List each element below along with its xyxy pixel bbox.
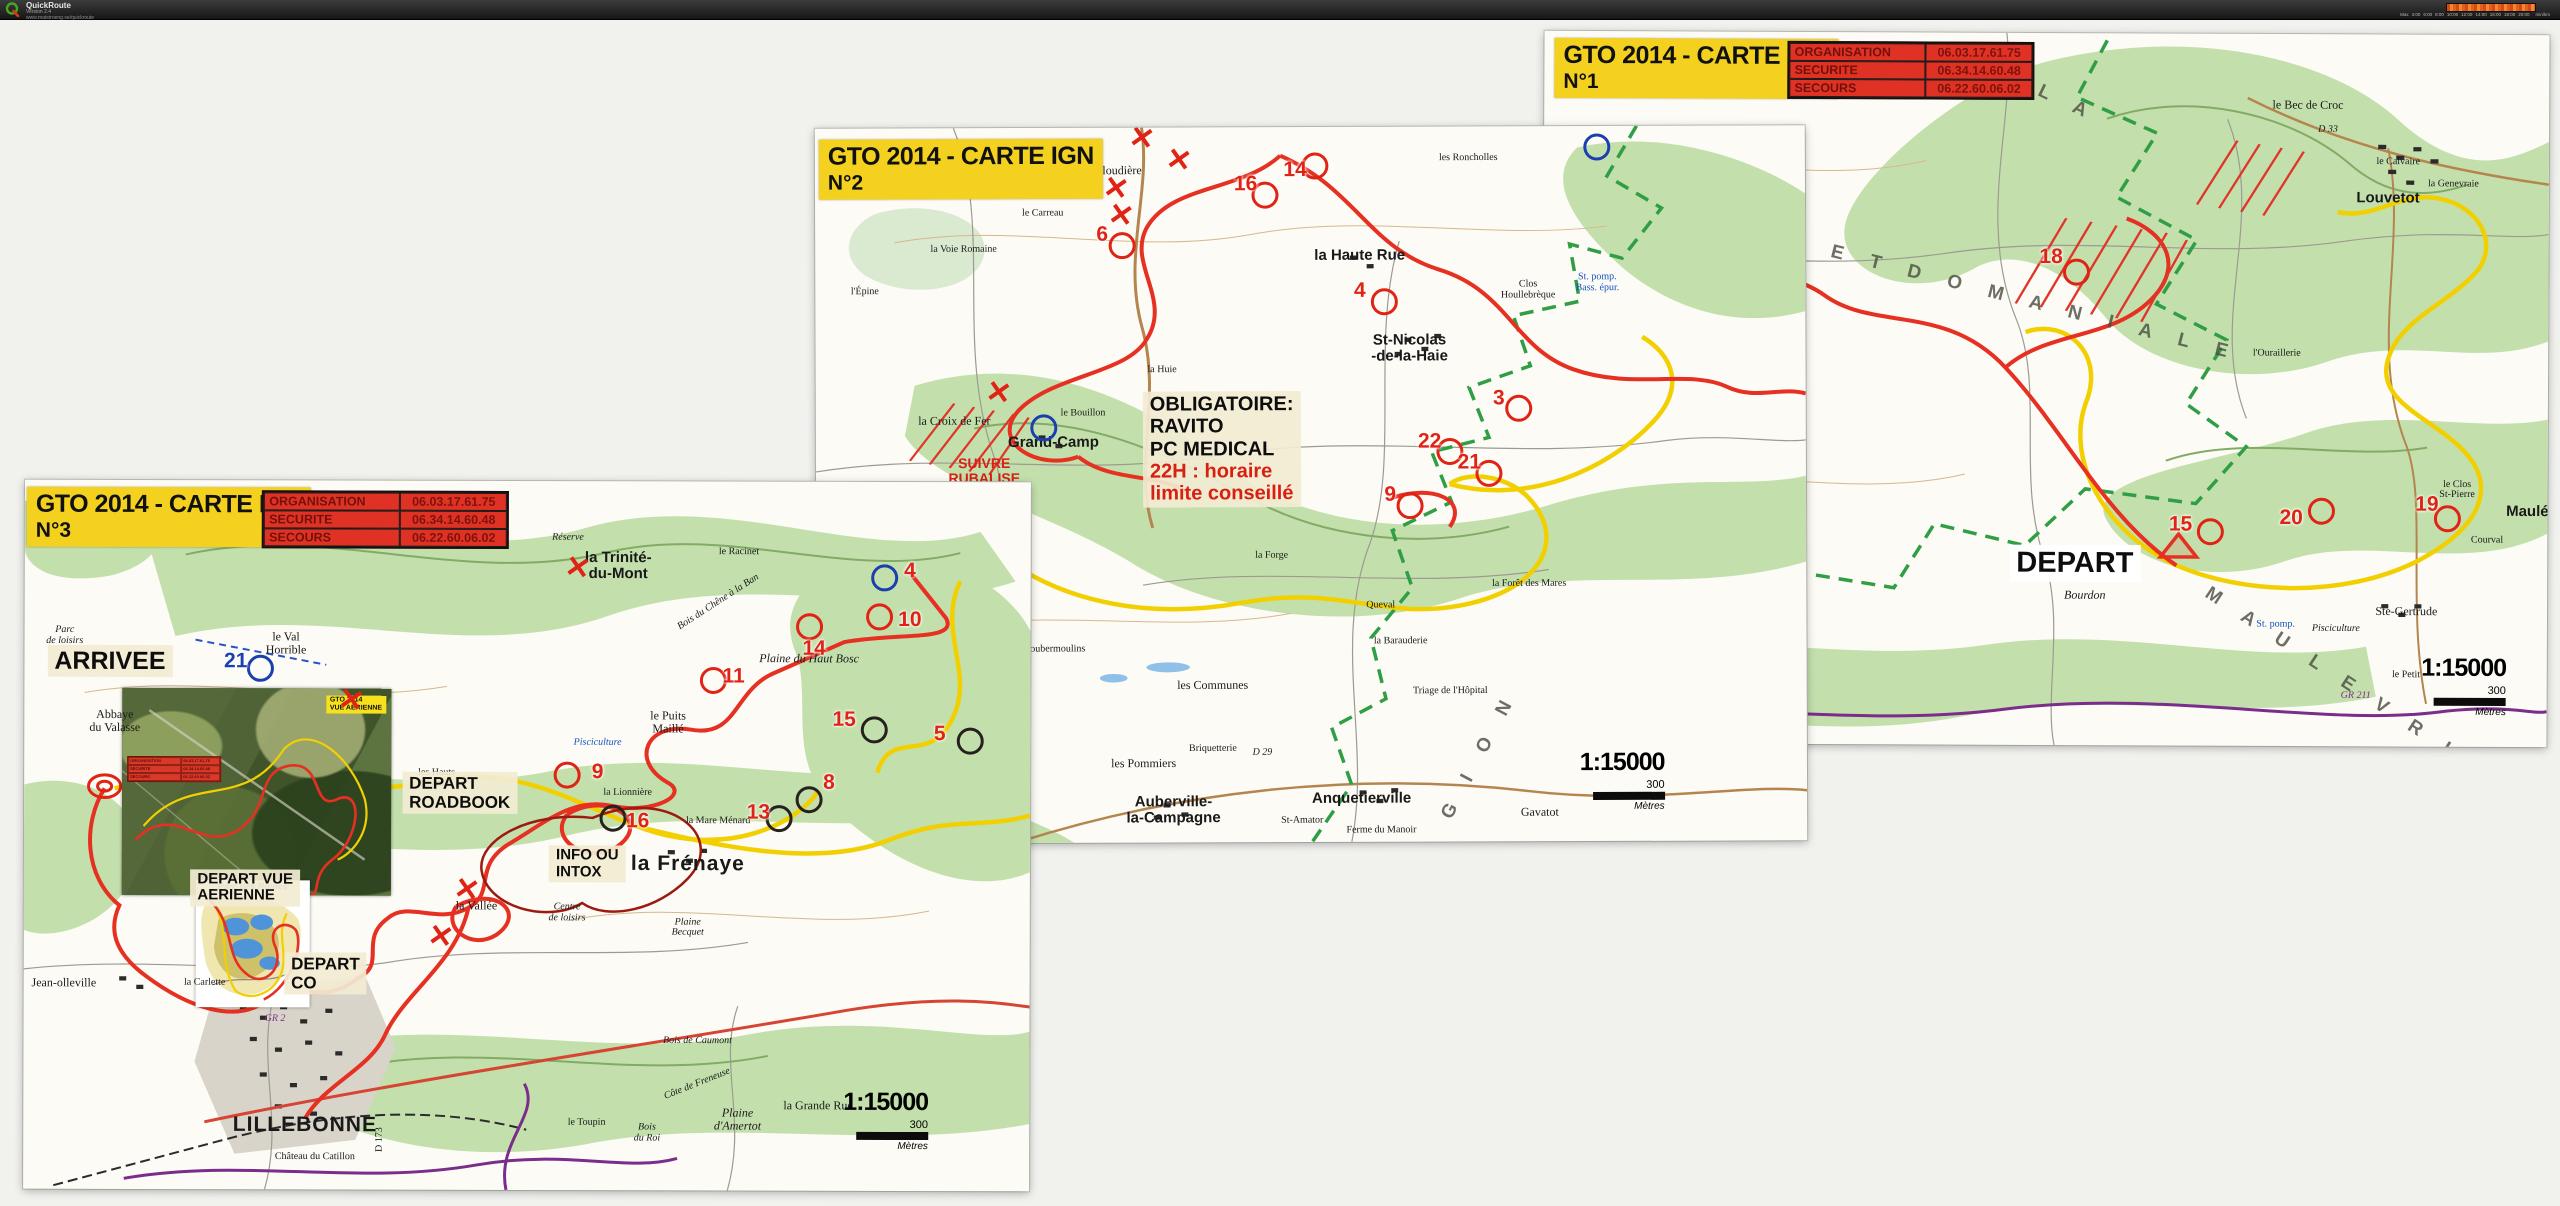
place-label: D 173 (375, 1128, 386, 1153)
contact-label: SECOURS (264, 528, 400, 546)
scale-ratio: 1:15000 (2396, 654, 2506, 683)
map-sheet-carte-n3[interactable]: GTO 2014 VUE AERIENNE ORGANISATION 06.03… (23, 480, 1031, 1192)
control-ring (2063, 258, 2090, 285)
annotation-line: ROADBOOK (409, 793, 510, 812)
place-label: D 29 (1253, 747, 1273, 758)
place-label: St. pomp. Bass. épur. (1576, 272, 1620, 294)
place-label: Ferme du Manoir (1346, 826, 1416, 837)
map-title-line1: GTO 2014 - CARTE IGN (828, 142, 1094, 172)
annotation-line: 22H : horaire (1150, 460, 1294, 483)
map-title-n2: GTO 2014 - CARTE IGN N°2 (819, 139, 1103, 200)
scale-indicator-n1: 1:15000 300 Mètres (2396, 654, 2506, 718)
place-label: Plaine Becquet (672, 917, 704, 939)
control-ring (866, 603, 893, 630)
control-ring (554, 762, 581, 789)
annotation-line: AERIENNE (197, 888, 293, 905)
place-label: la Croix de Fer (918, 415, 990, 428)
contact-label: SECURITE (1790, 60, 1926, 79)
place-label: Goubermoulins (1023, 644, 1085, 655)
control-number: 14 (1283, 158, 1306, 182)
control-ring (1505, 395, 1532, 422)
control-number: 11 (723, 664, 745, 688)
toolbar: QuickRoute Version 2.4 www.matstroeng.se… (0, 0, 2560, 20)
pace-gradient-bar[interactable] (2446, 3, 2536, 12)
place-label: St-Nicolas -de-la-Haie (1371, 332, 1448, 365)
place-label: le Racinet (719, 547, 759, 558)
legend-tick-label: 6:00 (2423, 12, 2432, 17)
contact-table-n1: ORGANISATION 06.03.17.61.75 SECURITE 06.… (1787, 40, 2034, 99)
control-number: 5 (934, 722, 946, 746)
place-label: le Toupin (568, 1117, 606, 1128)
place-label: les Pommiers (1111, 757, 1176, 770)
control-ring (1109, 232, 1136, 259)
place-label: Bourdon (2064, 589, 2106, 602)
place-label: le Bec de Croc (2273, 99, 2344, 112)
place-label: Anquetierville (1312, 791, 1411, 808)
place-label: la Haute Rue (1314, 247, 1405, 264)
control-number: 4 (904, 559, 916, 583)
place-label: L A (2034, 82, 2099, 127)
place-label: le Calvaire (2376, 157, 2420, 168)
contact-phone: 06.34.14.60.48 (400, 511, 507, 529)
place-label: l'Épine (851, 288, 879, 299)
place-label: la Huie (1148, 365, 1177, 376)
route-x-mark: ✕ (983, 373, 1014, 412)
annotation-line: DEPART VUE (197, 871, 293, 888)
place-label: la Forge (1255, 551, 1288, 562)
scale-bar (2434, 698, 2506, 706)
control-number: 20 (2279, 506, 2302, 530)
annotation-line: DEPART (2016, 547, 2133, 580)
contact-table-n3: ORGANISATION 06.03.17.61.75 SECURITE 06.… (262, 490, 509, 549)
pace-legend[interactable]: Max4:006:008:0010:0012:0014:0016:0018:00… (2400, 1, 2550, 18)
control-number: 18 (2039, 245, 2062, 269)
control-number: 16 (626, 810, 649, 834)
scale-indicator-n3: 1:15000 300 Mètres (818, 1088, 928, 1152)
legend-tick-label: 16:00 (2490, 12, 2501, 17)
control-ring (795, 786, 822, 813)
place-label: GR 2 (265, 1014, 286, 1025)
scale-ratio: 1:15000 (818, 1088, 928, 1117)
place-label: les Communes (1177, 678, 1248, 691)
map-title-line2: N°2 (828, 171, 1094, 196)
place-label: le Carreau (1022, 208, 1063, 219)
place-label: LILLEBONNE (233, 1114, 377, 1137)
contact-label: ORGANISATION (1790, 42, 1926, 61)
place-label: la Trinité- du-Mont (585, 550, 652, 583)
annotation-line: INTOX (556, 864, 619, 881)
annotation-line: PC MEDICAL (1150, 438, 1294, 461)
annotation-box: DEPARTCO (284, 952, 367, 994)
annotation-line: ARRIVEE (54, 647, 165, 675)
annotation-box: INFO OUINTOX (549, 845, 626, 883)
place-label: Clos Houllebrèque (1501, 280, 1556, 302)
control-number: 15 (832, 707, 855, 731)
legend-unit-label: min/km (2536, 12, 2551, 17)
place-label: Queval (1366, 600, 1395, 611)
place-label: Bois du Roi (634, 1123, 660, 1145)
place-label: Pisciculture (574, 738, 622, 749)
place-label: Château du Catillon (275, 1152, 355, 1163)
control-number: 9 (1384, 483, 1396, 507)
place-label: le Clos St-Pierre (2439, 480, 2475, 502)
place-label: Maulé (2506, 504, 2549, 520)
control-number: 3 (1493, 386, 1505, 410)
control-number: 15 (2169, 513, 2192, 537)
place-label: Pisciculture (2312, 623, 2360, 634)
scale-unit: Mètres (2396, 707, 2506, 718)
place-label: les Roncholles (1439, 153, 1498, 164)
control-ring (2197, 519, 2224, 546)
contact-label: ORGANISATION (264, 492, 400, 510)
annotation-line: DEPART (409, 774, 510, 793)
quickroute-logo-icon (5, 2, 20, 17)
annotation-line: DEPART (291, 954, 360, 973)
route-x-mark: ✕ (426, 917, 457, 956)
place-label: l'Ouraillerie (2253, 349, 2301, 360)
place-label: la Voie Romaine (931, 244, 997, 255)
scale-indicator-n2: 1:15000 300 Mètres (1554, 748, 1664, 812)
legend-tick-label: 8:00 (2435, 12, 2444, 17)
control-ring (2308, 498, 2335, 525)
legend-tick-label: 20:00 (2518, 12, 2529, 17)
place-label: Triage de l'Hôpital (1413, 686, 1488, 697)
place-label: la Mare Ménard (686, 816, 750, 827)
place-label: le Bouillon (1061, 408, 1106, 419)
place-label: Bois de Caumont (663, 1036, 732, 1047)
annotation-box: ARRIVEE (47, 645, 172, 677)
scale-value: 300 (1555, 779, 1665, 791)
route-x-mark: ✕ (336, 681, 367, 720)
control-number: 21 (224, 649, 247, 673)
scale-value: 300 (818, 1119, 928, 1131)
control-number: 14 (802, 636, 825, 660)
control-ring (599, 804, 626, 831)
control-ring (247, 655, 274, 682)
place-label: la Barauderie (1374, 636, 1428, 647)
place-label: Centre de loisirs (549, 903, 586, 925)
control-number: 9 (592, 760, 604, 784)
route-x-mark: ✕ (1164, 141, 1195, 180)
annotation-line: limite conseillé (1150, 482, 1294, 505)
control-ring (1030, 415, 1057, 442)
control-number: 8 (823, 771, 835, 795)
place-label: St-Amator (1281, 815, 1323, 826)
legend-tick-label: 10:00 (2447, 12, 2458, 17)
control-ring (956, 727, 983, 754)
place-label: Courval (2471, 535, 2503, 546)
label-layer-n3: la Trinité- du-Montle RacinetRéservePlai… (23, 480, 1031, 1192)
annotation-box: DEPARTROADBOOK (402, 772, 517, 814)
legend-tick-label: 4:00 (2412, 12, 2421, 17)
place-label: G I O N (1438, 688, 1522, 823)
place-label: Briquetterie (1189, 744, 1237, 755)
place-label: Abbaye du Valasse (89, 708, 140, 734)
control-number: 16 (1234, 172, 1257, 196)
annotation-box: DEPART (2009, 545, 2140, 582)
app-meta: QuickRoute Version 2.4 www.matstroeng.se… (26, 1, 94, 22)
place-label: Réserve (552, 532, 584, 543)
place-label: Plaine d'Amertot (714, 1107, 761, 1133)
control-number: 4 (1354, 279, 1366, 303)
legend-tick-row: Max4:006:008:0010:0012:0014:0016:0018:00… (2400, 12, 2550, 17)
scale-ratio: 1:15000 (1554, 748, 1664, 777)
annotation-box: DEPART VUEAERIENNE (190, 869, 300, 907)
control-number: 22 (1418, 429, 1441, 453)
control-ring (871, 564, 898, 591)
control-number: 13 (747, 801, 770, 825)
control-ring (1397, 492, 1424, 519)
annotation-line: INFO OU (556, 847, 619, 864)
place-label: D 33 (2318, 125, 2338, 136)
route-x-mark: ✕ (1106, 196, 1137, 235)
place-label: la Forêt des Mares (1492, 578, 1566, 589)
place-label: la Genevraie (2428, 179, 2479, 190)
place-label: Côte de Freneuse (663, 1066, 732, 1102)
place-label: la Frénaye (631, 853, 745, 876)
route-x-mark: ✕ (1126, 125, 1157, 157)
control-number: 19 (2415, 493, 2438, 517)
scale-bar (1593, 792, 1665, 800)
contact-phone: 06.22.60.06.02 (400, 529, 507, 547)
place-label: Ste-Gertrude (2375, 605, 2437, 618)
legend-tick-label: 18:00 (2504, 12, 2515, 17)
control-ring (861, 717, 888, 744)
legend-tick-label: 14:00 (2475, 12, 2486, 17)
place-label: le Val Horrible (266, 630, 307, 656)
annotation-line: OBLIGATOIRE: (1150, 393, 1294, 416)
scale-unit: Mètres (818, 1141, 928, 1152)
place-label: le Puits Maillé (650, 709, 686, 735)
control-ring (1371, 288, 1398, 315)
control-number: 10 (898, 608, 921, 632)
place-label: Louvetot (2356, 190, 2419, 206)
annotation-line: CO (291, 973, 360, 992)
place-label: Parc de loisirs (46, 625, 83, 647)
control-number: 21 (1458, 450, 1481, 474)
contact-label: SECURITE (264, 510, 400, 528)
annotation-box: OBLIGATOIRE:RAVITOPC MEDICAL22H : horair… (1143, 391, 1301, 508)
app-window: QuickRoute Version 2.4 www.matstroeng.se… (0, 0, 2560, 1206)
control-ring (1583, 134, 1610, 161)
place-label: Auberville- la-Campagne (1126, 794, 1220, 827)
contact-label: SECOURS (1789, 78, 1925, 97)
place-label: Bois du Chêne à la Ban (676, 572, 761, 632)
contact-phone: 06.34.14.60.48 (1926, 61, 2033, 79)
annotation-line: RAVITO (1150, 415, 1294, 438)
contact-phone: 06.22.60.06.02 (1926, 79, 2033, 97)
app-url: www.matstroeng.se/quickroute (26, 16, 94, 22)
scale-bar (856, 1132, 928, 1140)
legend-tick-label: 12:00 (2461, 12, 2472, 17)
contact-phone: 06.03.17.61.75 (400, 493, 507, 511)
scale-unit: Mètres (1555, 801, 1665, 812)
place-label: la Carlette (184, 978, 225, 989)
place-label: Gavatot (1521, 806, 1559, 819)
place-label: la Lionnière (603, 788, 652, 799)
scale-value: 300 (2396, 685, 2506, 697)
contact-phone: 06.03.17.61.75 (1926, 43, 2033, 61)
legend-tick-label: Max (2400, 12, 2409, 17)
place-label: Jean-olleville (32, 977, 97, 990)
